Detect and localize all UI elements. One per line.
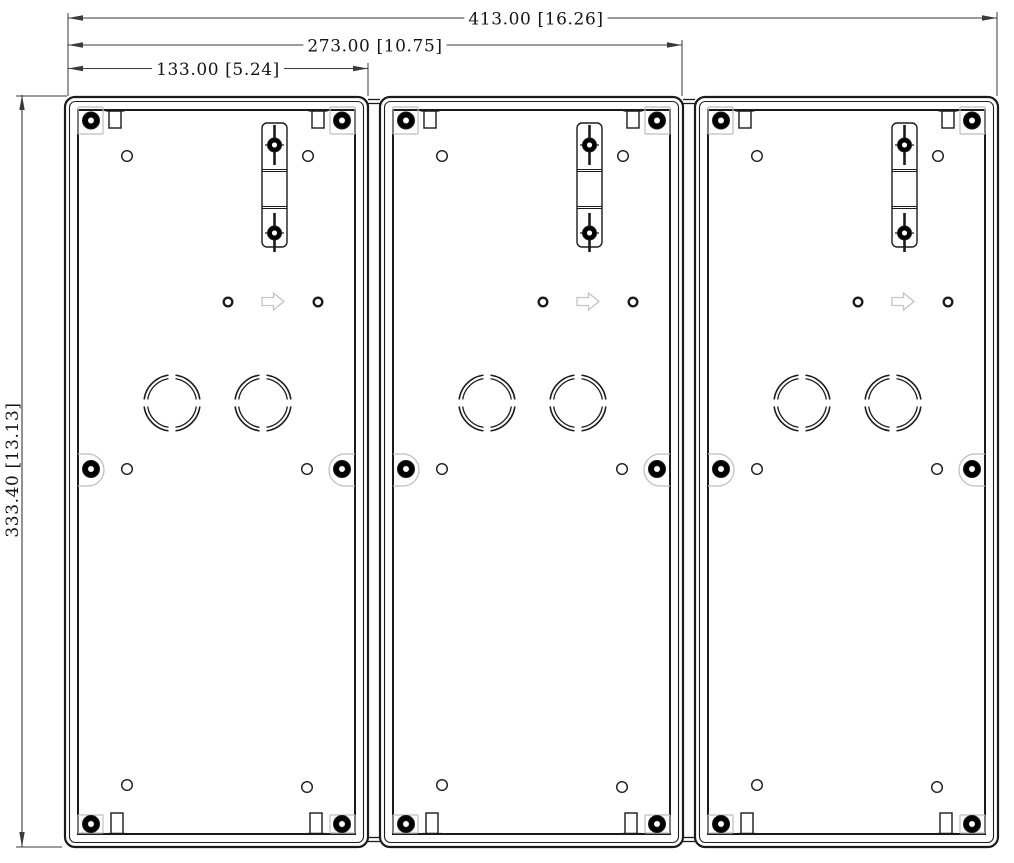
knockout-tab-gap bbox=[601, 400, 610, 407]
threaded-hole bbox=[629, 298, 638, 307]
knockout-tab-gap bbox=[772, 400, 781, 407]
threaded-hole bbox=[314, 298, 323, 307]
knockout-tab-gap bbox=[457, 400, 466, 407]
knockout-tab-gap bbox=[799, 426, 806, 435]
threaded-hole bbox=[539, 298, 548, 307]
cable-knockout-outer bbox=[865, 375, 921, 431]
dimension-arrowhead bbox=[68, 15, 83, 20]
dimension-arrowhead bbox=[19, 832, 24, 847]
screw-hole bbox=[437, 151, 448, 162]
knockout-tab-gap bbox=[890, 373, 897, 382]
technical-drawing-canvas: 413.00 [16.26] 273.00 [10.75] 133.00 [5.… bbox=[0, 0, 1014, 863]
screw-hole bbox=[617, 782, 628, 793]
box-inner-wall bbox=[78, 110, 355, 834]
screw-hole bbox=[122, 780, 133, 791]
knockout-tab-gap bbox=[169, 426, 176, 435]
wall-slot bbox=[942, 111, 954, 128]
cable-knockout-inner bbox=[148, 379, 197, 428]
threaded-hole bbox=[854, 298, 863, 307]
box-inner-wall bbox=[393, 110, 670, 834]
dimension-arrowhead bbox=[19, 95, 24, 110]
knockout-tab-gap bbox=[260, 426, 267, 435]
gang-box-1 bbox=[65, 97, 368, 847]
screw-hole bbox=[932, 782, 943, 793]
cable-knockout-inner bbox=[869, 379, 918, 428]
screw-hole bbox=[752, 780, 763, 791]
knockout-tab-gap bbox=[575, 373, 582, 382]
wall-slot bbox=[627, 111, 639, 128]
knockout-tab-gap bbox=[799, 373, 806, 382]
cable-knockout-inner bbox=[463, 379, 512, 428]
gang-box-2 bbox=[380, 97, 683, 847]
box-inner-wall bbox=[708, 110, 985, 834]
cable-knockout-outer bbox=[550, 375, 606, 431]
knockout-tab-gap bbox=[484, 426, 491, 435]
dimension-label-overall-width: 413.00 [16.26] bbox=[468, 10, 603, 30]
mounting-rail bbox=[577, 123, 602, 252]
mounting-rail bbox=[892, 123, 917, 252]
screw-hole bbox=[122, 151, 133, 162]
gang-box-3 bbox=[695, 97, 998, 847]
wall-slot bbox=[741, 813, 753, 834]
screw-hole bbox=[437, 780, 448, 791]
screw-hole bbox=[932, 464, 943, 475]
knockout-tab-gap bbox=[825, 400, 834, 407]
mounting-rail bbox=[262, 123, 287, 252]
screw-hole bbox=[752, 464, 763, 475]
dimension-label-one-gang-width: 133.00 [5.24] bbox=[156, 60, 280, 80]
knockout-tab-gap bbox=[169, 373, 176, 382]
wall-slot bbox=[426, 813, 438, 834]
screw-hole bbox=[303, 151, 314, 162]
box-outer-wall-inner-line bbox=[700, 102, 994, 843]
cable-knockout-outer bbox=[235, 375, 291, 431]
knockout-tab-gap bbox=[575, 426, 582, 435]
screw-hole bbox=[437, 464, 448, 475]
direction-arrow-icon bbox=[262, 293, 284, 310]
dimension-arrowhead bbox=[68, 66, 83, 71]
drawing-root bbox=[16, 12, 998, 847]
cable-knockout-inner bbox=[778, 379, 827, 428]
knockout-tab-gap bbox=[142, 400, 151, 407]
cable-knockout-outer bbox=[774, 375, 830, 431]
knockout-tab-gap bbox=[233, 400, 242, 407]
screw-hole bbox=[617, 464, 628, 475]
box-outer-wall-inner-line bbox=[70, 102, 364, 843]
direction-arrow-icon bbox=[892, 293, 914, 310]
cable-knockout-outer bbox=[459, 375, 515, 431]
knockout-tab-gap bbox=[286, 400, 295, 407]
direction-arrow-icon bbox=[577, 293, 599, 310]
box-outer-wall bbox=[380, 97, 683, 847]
box-outer-wall bbox=[65, 97, 368, 847]
threaded-hole bbox=[944, 298, 953, 307]
knockout-tab-gap bbox=[510, 400, 519, 407]
cable-knockout-inner bbox=[239, 379, 288, 428]
screw-hole bbox=[618, 151, 629, 162]
wall-slot bbox=[940, 813, 952, 834]
threaded-hole bbox=[224, 298, 233, 307]
cable-knockout-inner bbox=[554, 379, 603, 428]
dimension-arrowhead bbox=[667, 42, 682, 47]
box-outer-wall-inner-line bbox=[385, 102, 679, 843]
wall-slot bbox=[312, 111, 324, 128]
screw-hole bbox=[302, 782, 313, 793]
cable-knockout-outer bbox=[144, 375, 200, 431]
knockout-tab-gap bbox=[916, 400, 925, 407]
dimension-labels: 413.00 [16.26] 273.00 [10.75] 133.00 [5.… bbox=[3, 10, 604, 538]
knockout-tab-gap bbox=[890, 426, 897, 435]
box-outer-wall bbox=[695, 97, 998, 847]
wall-slot bbox=[109, 111, 121, 128]
screw-hole bbox=[933, 151, 944, 162]
wall-slot bbox=[111, 813, 123, 834]
dimension-arrowhead bbox=[68, 42, 83, 47]
drawing-page: 413.00 [16.26] 273.00 [10.75] 133.00 [5.… bbox=[0, 0, 1014, 863]
dimension-label-two-gang-width: 273.00 [10.75] bbox=[307, 37, 442, 57]
wall-slot bbox=[424, 111, 436, 128]
knockout-tab-gap bbox=[863, 400, 872, 407]
knockout-tab-gap bbox=[548, 400, 557, 407]
screw-hole bbox=[302, 464, 313, 475]
screw-hole bbox=[122, 464, 133, 475]
dimension-arrowhead bbox=[982, 15, 997, 20]
knockout-tab-gap bbox=[484, 373, 491, 382]
wall-slot bbox=[739, 111, 751, 128]
dimension-label-overall-height: 333.40 [13.13] bbox=[3, 402, 23, 537]
screw-hole bbox=[752, 151, 763, 162]
knockout-tab-gap bbox=[260, 373, 267, 382]
dimension-arrowhead bbox=[353, 66, 368, 71]
wall-slot bbox=[625, 813, 637, 834]
knockout-tab-gap bbox=[195, 400, 204, 407]
wall-slot bbox=[310, 813, 322, 834]
